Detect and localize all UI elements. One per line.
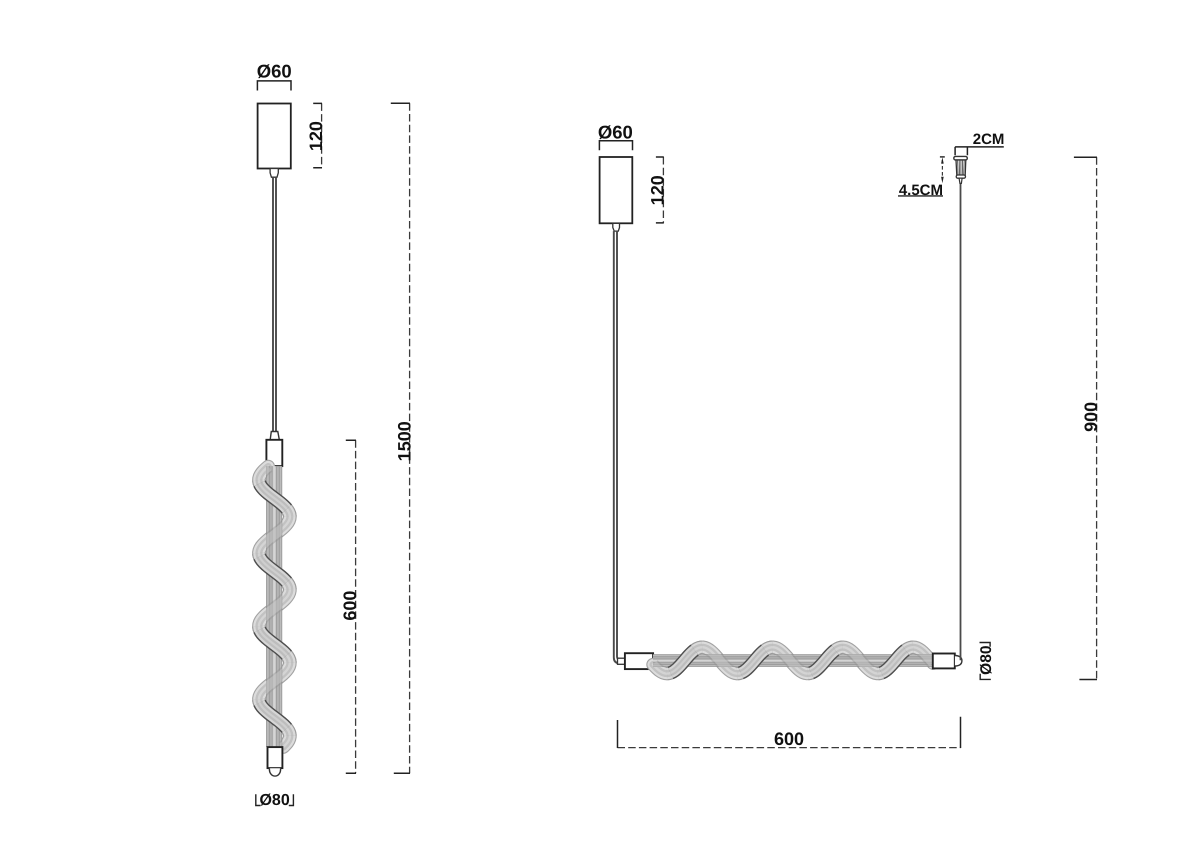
svg-text:600: 600 [774, 729, 804, 749]
svg-text:Ø60: Ø60 [257, 60, 292, 81]
svg-text:2CM: 2CM [973, 131, 1005, 148]
svg-text:600: 600 [340, 591, 360, 621]
svg-text:120: 120 [306, 121, 326, 151]
svg-text:Ø60: Ø60 [598, 122, 633, 143]
svg-text:120: 120 [648, 175, 668, 205]
svg-text:Ø80: Ø80 [978, 646, 995, 675]
svg-text:Ø80: Ø80 [259, 792, 289, 809]
svg-text:1500: 1500 [394, 421, 414, 461]
svg-text:900: 900 [1081, 402, 1101, 432]
